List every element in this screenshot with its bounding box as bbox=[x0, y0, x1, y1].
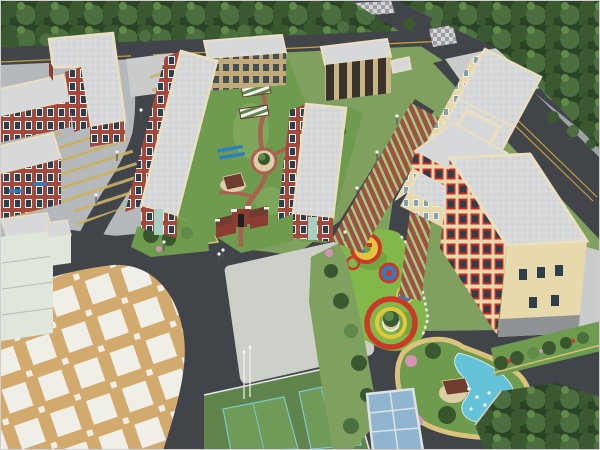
entrance-canopy-1 bbox=[9, 189, 23, 193]
aerial-rendering bbox=[0, 0, 600, 450]
stair-glass-left bbox=[154, 209, 163, 235]
gate-opening bbox=[238, 214, 244, 227]
stair-glass-right bbox=[308, 217, 317, 240]
entrance-canopy-2 bbox=[33, 182, 47, 186]
masterplan-scene bbox=[1, 1, 600, 450]
crosswalk-center bbox=[429, 25, 457, 47]
bicycle-shed bbox=[367, 389, 423, 450]
pond-pavilion bbox=[442, 378, 470, 395]
